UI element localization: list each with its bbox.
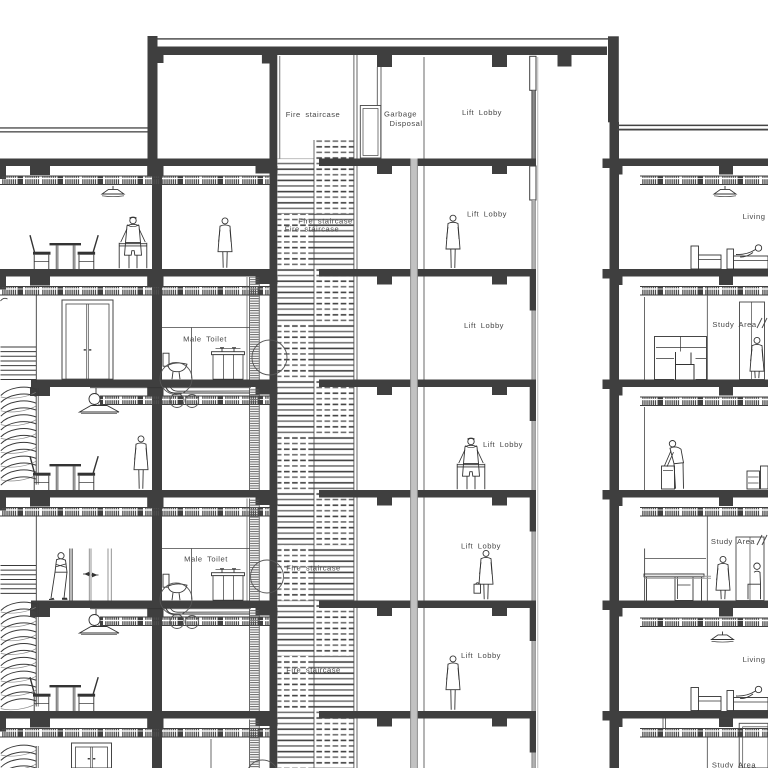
svg-text:Study Area: Study Area: [711, 537, 755, 546]
svg-text:Garbage: Garbage: [384, 110, 417, 119]
svg-text:Lift Lobby: Lift Lobby: [461, 651, 501, 660]
svg-text:Living: Living: [743, 212, 766, 221]
svg-text:Living: Living: [743, 655, 766, 664]
svg-text:Lift Lobby: Lift Lobby: [467, 209, 507, 218]
svg-text:Disposal: Disposal: [389, 119, 422, 128]
svg-text:Fire staircase: Fire staircase: [285, 224, 340, 233]
svg-text:Fire staircase: Fire staircase: [286, 666, 341, 675]
svg-text:Male Toilet: Male Toilet: [183, 334, 227, 343]
svg-text:Study Area: Study Area: [712, 320, 756, 329]
svg-text:Lift Lobby: Lift Lobby: [461, 541, 501, 550]
svg-text:Male Toilet: Male Toilet: [184, 554, 228, 563]
svg-text:Fire staircase: Fire staircase: [286, 110, 341, 119]
svg-text:Lift Lobby: Lift Lobby: [483, 440, 523, 449]
svg-text:Lift Lobby: Lift Lobby: [462, 108, 502, 117]
svg-text:Study Area: Study Area: [712, 761, 756, 768]
svg-text:Fire staircase: Fire staircase: [286, 564, 341, 573]
svg-text:Lift Lobby: Lift Lobby: [464, 321, 504, 330]
